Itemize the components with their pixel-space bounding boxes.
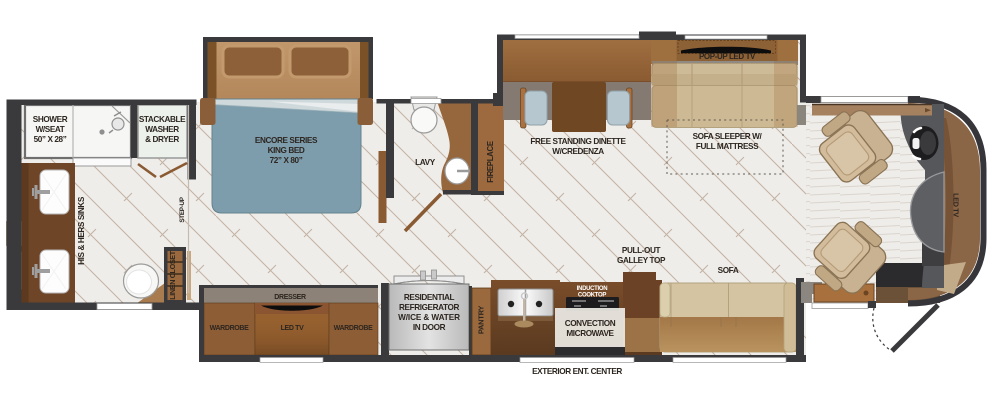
svg-text:STACKABLE: STACKABLE [139, 115, 186, 124]
svg-text:CONVECTION: CONVECTION [565, 319, 616, 328]
svg-text:WARDROBE: WARDROBE [210, 325, 249, 332]
svg-text:FULL MATTRESS: FULL MATTRESS [696, 142, 759, 151]
svg-text:W/CREDENZA: W/CREDENZA [552, 147, 604, 156]
svg-text:MICROWAVE: MICROWAVE [566, 329, 614, 338]
svg-text:ENCORE SERIES: ENCORE SERIES [255, 136, 318, 145]
svg-text:WARDROBE: WARDROBE [334, 325, 373, 332]
svg-text:FIREPLACE: FIREPLACE [486, 141, 495, 183]
svg-text:FREE STANDING DINETTE: FREE STANDING DINETTE [530, 137, 626, 146]
svg-text:50” X 28”: 50” X 28” [34, 135, 67, 144]
svg-text:EXTERIOR ENT. CENTER: EXTERIOR ENT. CENTER [532, 367, 622, 376]
svg-text:LED TV: LED TV [952, 193, 961, 217]
svg-text:COOKTOP: COOKTOP [578, 293, 606, 299]
svg-text:SHOWER: SHOWER [33, 115, 68, 124]
svg-text:LAVY: LAVY [415, 158, 436, 167]
svg-text:POP-UP LED TV: POP-UP LED TV [699, 52, 756, 61]
svg-text:PANTRY: PANTRY [477, 306, 486, 334]
svg-text:SOFA: SOFA [718, 266, 739, 275]
svg-text:HIS & HERS SINKS: HIS & HERS SINKS [77, 196, 86, 265]
svg-text:SOFA SLEEPER W/: SOFA SLEEPER W/ [693, 132, 763, 141]
svg-text:INDUCTION: INDUCTION [577, 286, 608, 292]
svg-text:LINEN CLOSET: LINEN CLOSET [168, 250, 177, 299]
svg-text:DRESSER: DRESSER [274, 294, 306, 301]
svg-text:GALLEY TOP: GALLEY TOP [617, 256, 666, 265]
svg-text:REFRIGERATOR: REFRIGERATOR [399, 303, 459, 312]
svg-text:WASHER: WASHER [145, 125, 179, 134]
svg-text:72” X 80”: 72” X 80” [270, 156, 303, 165]
svg-text:W/SEAT: W/SEAT [36, 125, 65, 134]
svg-text:IN DOOR: IN DOOR [413, 323, 446, 332]
svg-text:RESIDENTIAL: RESIDENTIAL [404, 293, 455, 302]
svg-text:& DRYER: & DRYER [145, 135, 179, 144]
svg-text:W/ICE & WATER: W/ICE & WATER [398, 313, 460, 322]
svg-text:LED TV: LED TV [281, 325, 304, 332]
svg-text:PULL-OUT: PULL-OUT [622, 246, 661, 255]
svg-text:KING BED: KING BED [268, 146, 305, 155]
svg-text:STEP-UP: STEP-UP [179, 197, 186, 222]
